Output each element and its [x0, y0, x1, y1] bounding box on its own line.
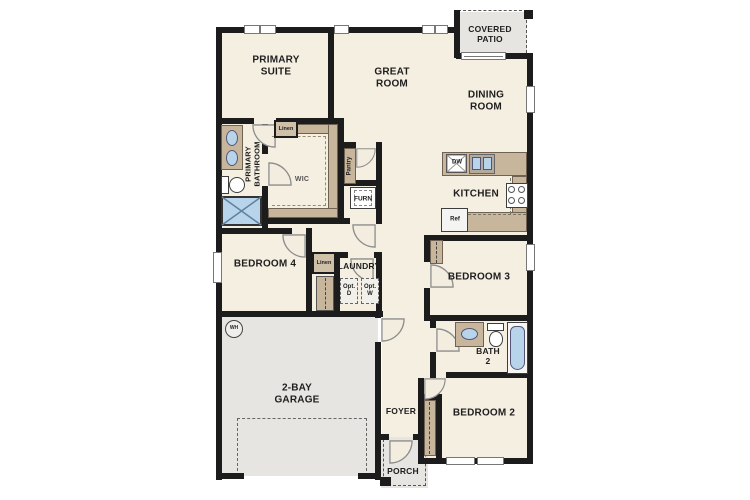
linen-label: Linen	[279, 126, 294, 132]
window	[526, 244, 535, 271]
sliding-door	[461, 52, 506, 60]
counter-dashed-edge	[468, 214, 526, 215]
kitchen-sink-icon	[483, 157, 492, 170]
room-label-wic: WIC	[295, 176, 309, 184]
room-label-bedroom-2: BEDROOM 2	[453, 407, 515, 419]
sink-icon	[226, 130, 238, 146]
room-label-kitchen: KITCHEN	[453, 188, 499, 200]
wall	[216, 118, 254, 124]
sink-icon	[461, 328, 478, 340]
sliding-door-rail	[464, 56, 503, 57]
closet-slider-line	[436, 242, 437, 263]
wall	[424, 288, 430, 315]
room-label-bedroom-4: BEDROOM 4	[234, 258, 296, 270]
floor-right-wing	[456, 53, 533, 464]
room-label-garage: 2-BAY GARAGE	[274, 383, 319, 406]
floor-plan: DW Ref Opt. D Opt. W WH PRIMARY SUITE GR…	[0, 0, 750, 500]
room-label-bath-2: BATH 2	[476, 347, 500, 367]
wall	[262, 218, 350, 224]
room-label-dining-room: DINING ROOM	[468, 90, 504, 113]
window	[422, 25, 435, 34]
door-pantry	[356, 148, 376, 168]
stove-burner-icon	[508, 186, 515, 193]
toilet-icon	[221, 176, 229, 194]
wic-shelf	[328, 124, 338, 218]
window	[334, 25, 349, 34]
window	[526, 86, 535, 113]
room-label-porch: PORCH	[387, 467, 419, 477]
room-label-primary-suite: PRIMARY SUITE	[252, 55, 299, 78]
closet-slider-line	[429, 402, 430, 454]
stove-burner-icon	[508, 197, 515, 204]
window	[446, 457, 475, 465]
furnace-label: FURN	[354, 195, 372, 202]
door-bedroom-4	[282, 234, 306, 258]
wall-post	[380, 477, 391, 486]
wall	[216, 228, 292, 234]
room-label-great-room: GREAT ROOM	[374, 67, 409, 90]
wall	[454, 10, 460, 58]
room-label-foyer: FOYER	[386, 407, 416, 417]
dishwasher-label: DW	[452, 160, 462, 167]
optional-washer-label: Opt. W	[364, 284, 376, 298]
stove-burner-icon	[518, 186, 525, 193]
toilet-bowl-icon	[489, 331, 503, 347]
window	[260, 25, 276, 34]
wall	[413, 434, 424, 440]
hall-closet-slider-line	[325, 278, 326, 309]
door-front	[389, 440, 413, 464]
toilet-icon	[487, 323, 504, 331]
room-label-covered-patio: COVERED PATIO	[468, 25, 511, 45]
linen-label: Linen	[317, 260, 332, 266]
room-label-bedroom-3: BEDROOM 3	[448, 271, 510, 283]
wall-post	[524, 10, 533, 19]
wall	[436, 400, 442, 458]
window	[213, 252, 222, 283]
wall	[430, 352, 436, 378]
pantry-label: Pantry	[347, 157, 354, 176]
wic-shelf	[268, 208, 338, 218]
wall	[376, 186, 382, 224]
shower-icon	[221, 196, 262, 226]
window	[244, 25, 260, 34]
sink-icon	[226, 150, 238, 166]
wic-shelf-dashed-edge	[272, 136, 326, 206]
door-garage	[381, 318, 405, 342]
window	[435, 25, 448, 34]
wall	[424, 315, 533, 321]
water-heater-label: WH	[230, 326, 238, 332]
wall	[418, 458, 533, 464]
refrigerator-label: Ref	[450, 217, 460, 224]
door-furnace	[352, 224, 376, 248]
window	[477, 457, 504, 465]
bedroom-2-closet	[424, 400, 436, 456]
bathtub-basin	[510, 326, 525, 370]
wall	[430, 321, 436, 328]
stove-burner-icon	[518, 197, 525, 204]
wall	[375, 434, 389, 440]
room-label-primary-bathroom: PRIMARY BATHROOM	[244, 141, 261, 186]
garage-door-dashed-outline	[237, 418, 367, 476]
room-label-laundry: LAUNDRY	[338, 262, 381, 272]
wall	[358, 473, 381, 479]
door-bedroom-2	[424, 378, 446, 400]
wall	[216, 311, 383, 317]
wall	[375, 342, 381, 480]
wall	[328, 27, 334, 124]
wall	[216, 473, 244, 479]
kitchen-sink-icon	[472, 157, 481, 170]
optional-dryer-label: Opt. D	[343, 284, 355, 298]
